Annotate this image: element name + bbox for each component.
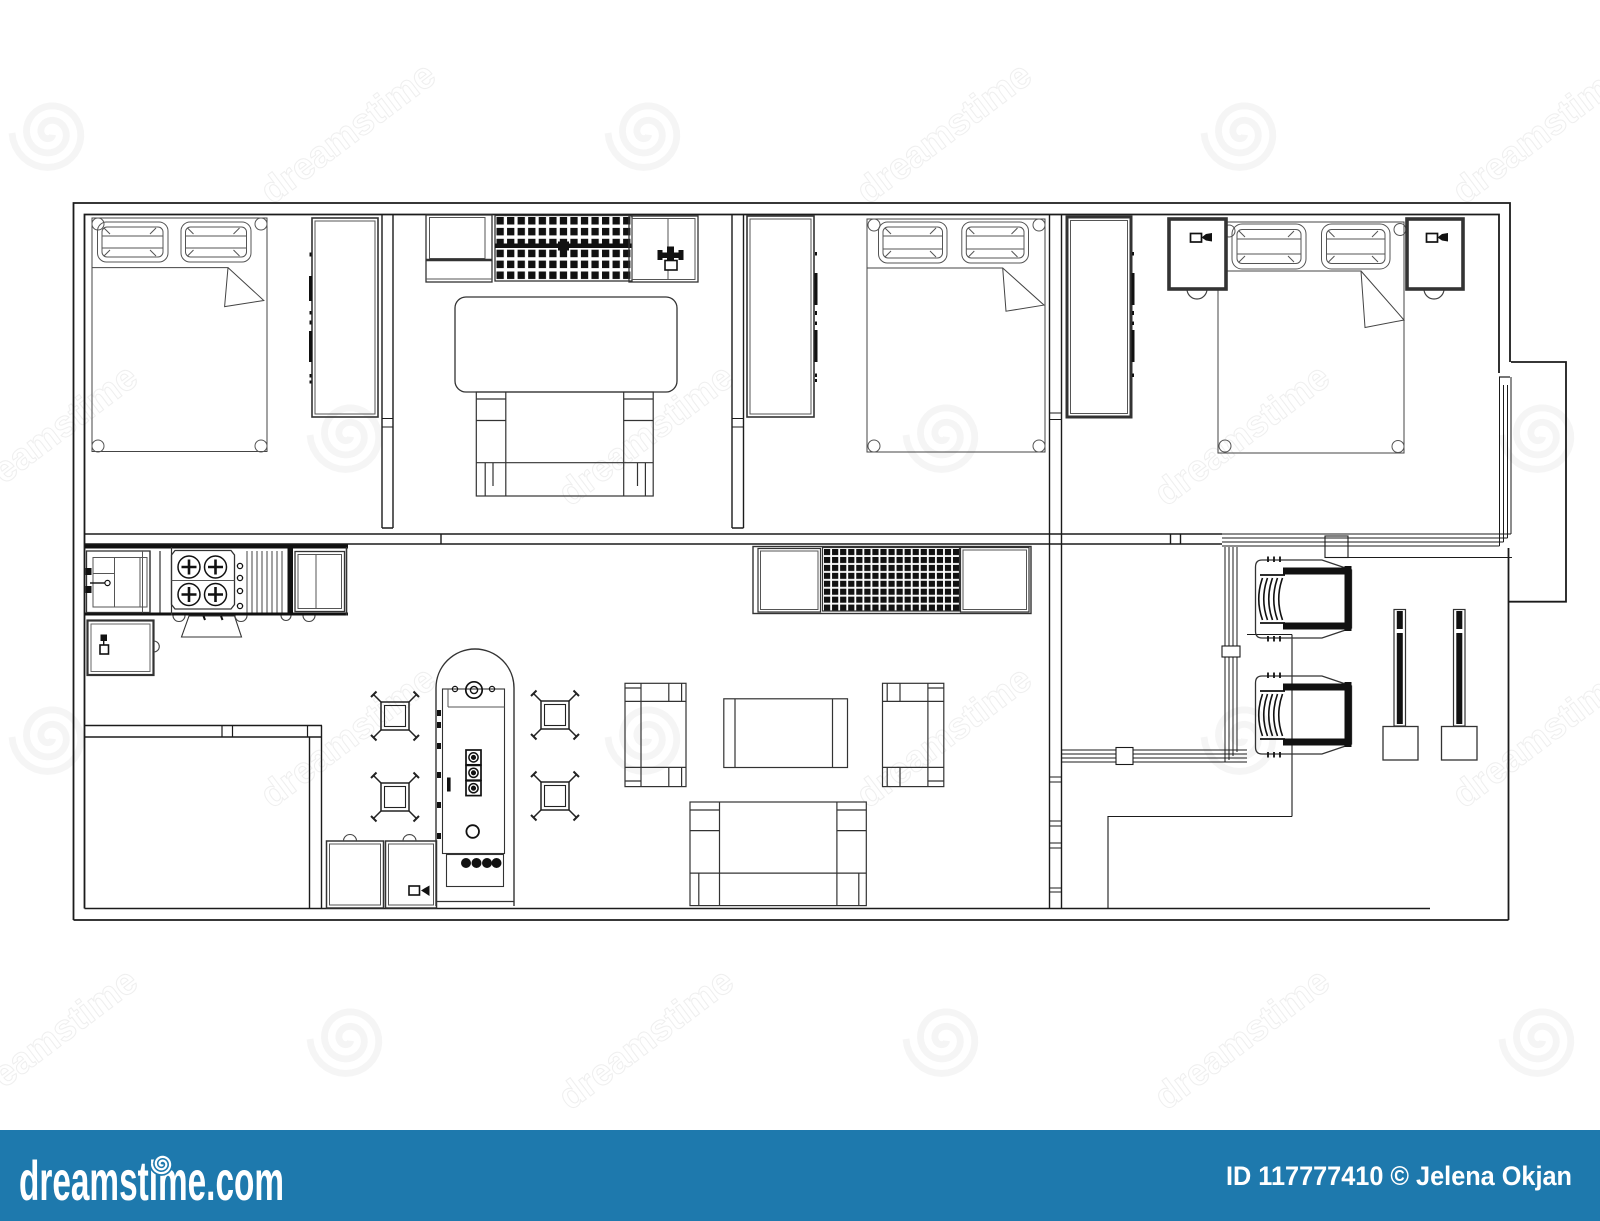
svg-text:ID 117777410 © Jelena Okjan: ID 117777410 © Jelena Okjan <box>1226 1161 1572 1191</box>
svg-text:dreamstime.com: dreamstime.com <box>19 1149 284 1212</box>
